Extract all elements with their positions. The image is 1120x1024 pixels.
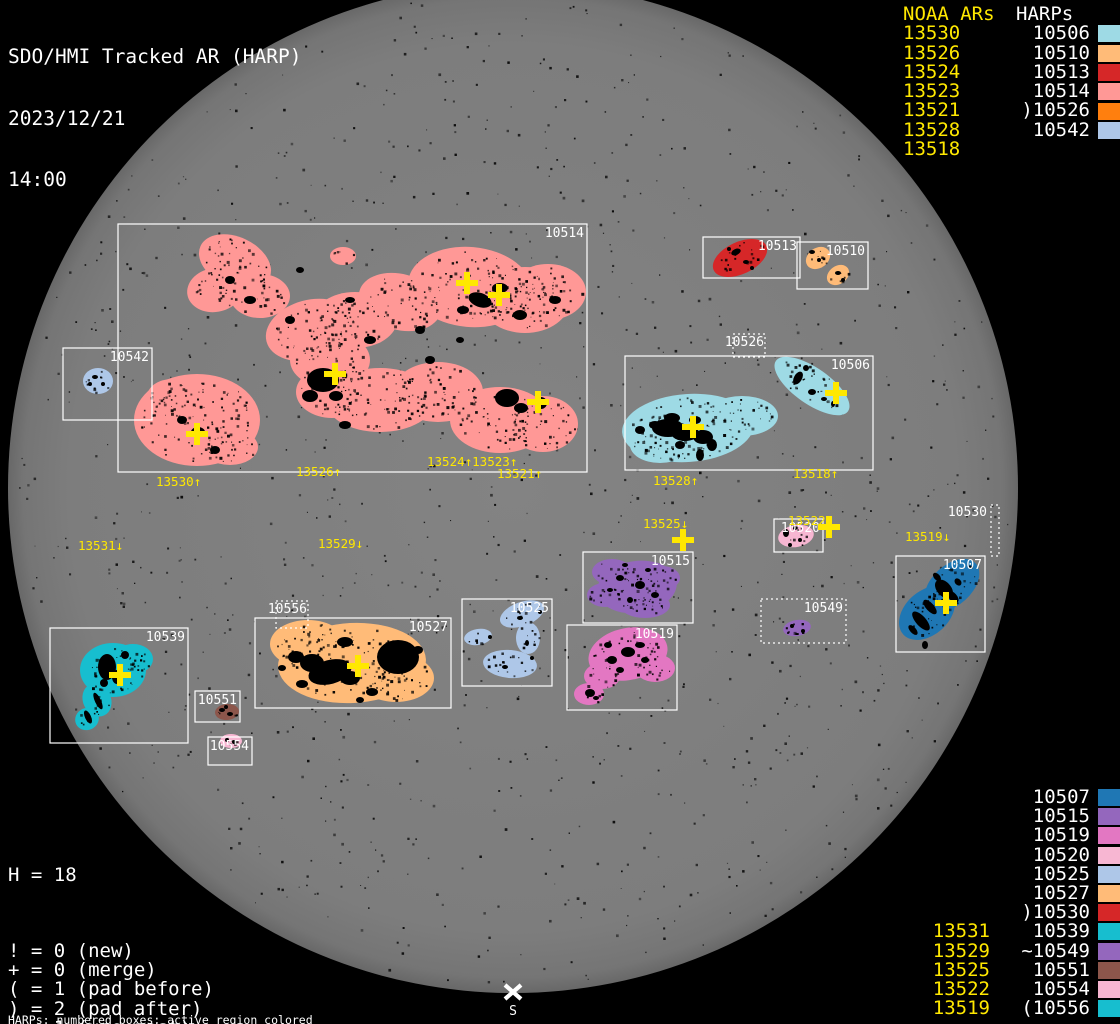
harp-color-swatch <box>1098 103 1120 120</box>
harp-number: 10506 <box>995 24 1090 43</box>
legend-row: 10525 <box>930 865 1120 884</box>
harp-color-swatch <box>1098 45 1120 62</box>
harp-label-10551: 10551 <box>198 693 237 708</box>
legend-bottom-right: 105071051510519105201052510527)105301353… <box>930 788 1120 1018</box>
harp-color-swatch <box>1098 25 1120 42</box>
harp-number: ~10549 <box>990 942 1090 961</box>
noaa-label-13518: 13518↑ <box>793 466 838 481</box>
legend-row: 1352610510 <box>903 44 1120 63</box>
legend-row: 1353110539 <box>930 922 1120 941</box>
harp-color-swatch <box>1098 1000 1120 1017</box>
harp-region-10542 <box>83 368 113 394</box>
harp-color-swatch <box>1098 83 1120 100</box>
harp-label-10519: 10519 <box>635 627 674 642</box>
legend-row: 13521)10526 <box>903 101 1120 120</box>
harp-label-10515: 10515 <box>651 554 690 569</box>
harp-color-swatch <box>1098 885 1120 902</box>
harp-label-10554: 10554 <box>210 739 249 754</box>
harp-label-10549: 10549 <box>804 601 843 616</box>
harp-count: H = 18 <box>8 866 225 885</box>
noaa-label-13526: 13526↑ <box>296 464 341 479</box>
harp-label-10507: 10507 <box>943 558 982 573</box>
legend-top-right: NOAA ARs HARPs 1353010506135261051013524… <box>903 5 1120 159</box>
harp-color-swatch <box>1098 981 1120 998</box>
legend-row: 13518 <box>903 140 1120 159</box>
harp-label-10526: 10526 <box>725 335 764 350</box>
legend-row: 1353010506 <box>903 24 1120 43</box>
plot-title: SDO/HMI Tracked AR (HARP) <box>8 47 302 68</box>
harp-label-10527: 10527 <box>409 620 448 635</box>
noaa-label-13525: 13525↓ <box>643 516 688 531</box>
harp-color-swatch <box>1098 827 1120 844</box>
legend-row: 10520 <box>930 846 1120 865</box>
harp-label-10556: 10556 <box>268 602 307 617</box>
noaa-label-13531: 13531↓ <box>78 538 123 553</box>
harp-number: 10539 <box>990 922 1090 941</box>
harp-color-swatch <box>1098 962 1120 979</box>
harp-number: 10520 <box>990 846 1090 865</box>
solar-harp-plot: 1051410542105131051010526105061053010507… <box>0 0 1120 1024</box>
noaa-ar-number: 13521 <box>903 101 995 120</box>
harp-color-swatch <box>1098 847 1120 864</box>
legend-row: 13529~10549 <box>930 942 1120 961</box>
legend-row: 10507 <box>930 788 1120 807</box>
legend-row: 13519(10556 <box>930 999 1120 1018</box>
noaa-ar-number: 13530 <box>903 24 995 43</box>
harp-number: (10556 <box>990 999 1090 1018</box>
harp-label-10513: 10513 <box>758 239 797 254</box>
legend-row: 1352510551 <box>930 961 1120 980</box>
harp-color-swatch <box>1098 866 1120 883</box>
noaa-ar-number: 13526 <box>903 44 995 63</box>
caption-line-1: HARPs: numbered boxes; active region col… <box>8 1014 410 1024</box>
legend-row: 10519 <box>930 826 1120 845</box>
harp-label-10506: 10506 <box>831 358 870 373</box>
harp-color-swatch <box>1098 122 1120 139</box>
legend-row: 10515 <box>930 807 1120 826</box>
harp-label-10510: 10510 <box>826 244 865 259</box>
harp-label-10530: 10530 <box>948 505 987 520</box>
harp-color-swatch <box>1098 789 1120 806</box>
plot-date: 2023/12/21 <box>8 109 302 130</box>
noaa-ar-number: 13529 <box>930 942 990 961</box>
noaa-label-13522: 13522↓ <box>788 513 833 528</box>
noaa-ar-number: 13531 <box>930 922 990 941</box>
harp-label-10525: 10525 <box>510 601 549 616</box>
harp-label-10514: 10514 <box>545 226 584 241</box>
noaa-ar-number: 13519 <box>930 999 990 1018</box>
harp-number: 10542 <box>995 121 1090 140</box>
harp-color-swatch <box>1098 923 1120 940</box>
plot-title-block: SDO/HMI Tracked AR (HARP) 2023/12/21 14:… <box>8 6 302 232</box>
south-pole-label: S <box>509 1004 517 1019</box>
harp-color-swatch <box>1098 943 1120 960</box>
harp-color-swatch <box>1098 808 1120 825</box>
noaa-label-13521: 13521↑ <box>497 466 542 481</box>
noaa-label-13528: 13528↑ <box>653 473 698 488</box>
harp-number: )10526 <box>995 101 1090 120</box>
harp-number: 10510 <box>995 44 1090 63</box>
harp-color-swatch <box>1098 64 1120 81</box>
harp-label-10539: 10539 <box>146 630 185 645</box>
noaa-label-13529: 13529↓ <box>318 536 363 551</box>
harp-label-10542: 10542 <box>110 350 149 365</box>
harp-number: 10551 <box>990 961 1090 980</box>
noaa-label-13519: 13519↓ <box>905 529 950 544</box>
caption: HARPs: numbered boxes; active region col… <box>8 989 410 1024</box>
noaa-ar-number: 13518 <box>903 140 995 159</box>
noaa-ar-number: 13525 <box>930 961 990 980</box>
harp-color-swatch <box>1098 904 1120 921</box>
harp-number: 10519 <box>990 826 1090 845</box>
noaa-label-13530: 13530↑ <box>156 474 201 489</box>
plot-time: 14:00 <box>8 170 302 191</box>
